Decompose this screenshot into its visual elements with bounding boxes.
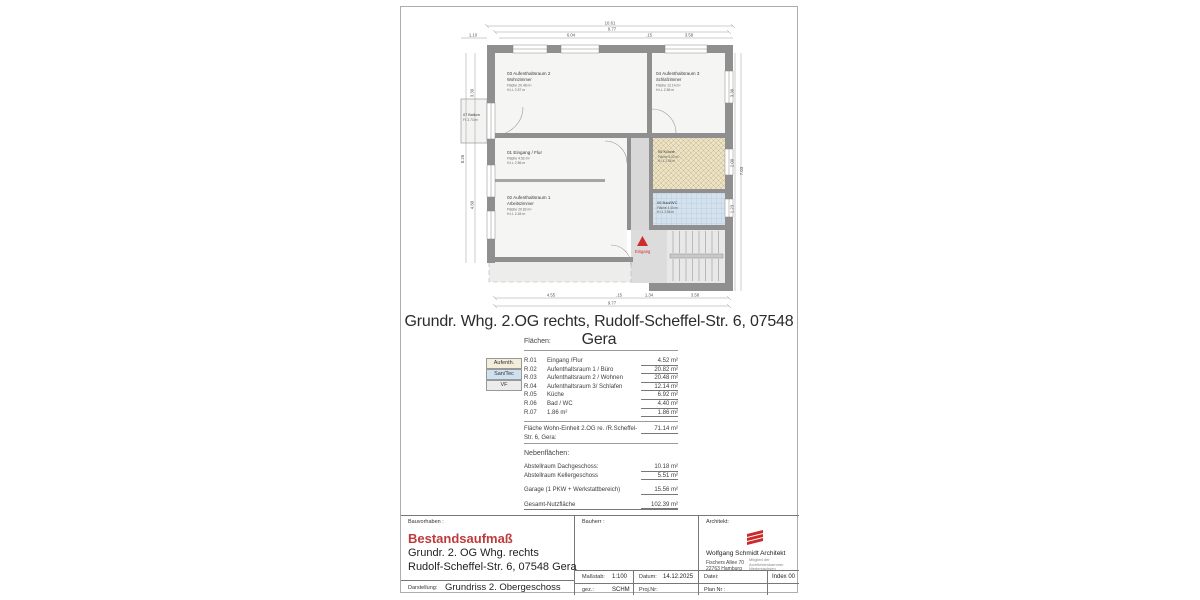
row-name: Bad / WC	[547, 400, 641, 409]
index-value: Index 00	[772, 574, 795, 580]
room-height: H.i.L 2.56 m	[658, 159, 675, 163]
room-label: 05 Küche	[658, 149, 676, 154]
row-code: R.06	[524, 400, 547, 409]
item-label: Garage (1 PKW + Werkstattbereich)	[524, 486, 641, 495]
room-label: 07 Balkon	[463, 113, 480, 117]
dim-right-upper: 3.39	[730, 88, 735, 97]
room-sublabel: Wohnzimmer	[507, 77, 532, 82]
table-row: R.07 1.86 m² 1.86 m²	[524, 409, 678, 418]
room-fills	[461, 53, 725, 283]
table-row: R.03 Aufenthaltsraum 2 / Wohnen 20.48 m²	[524, 374, 678, 383]
project-line1: Grundr. 2. OG Whg. rechts	[408, 547, 539, 559]
row-value: 12.14 m²	[641, 383, 678, 392]
massstab-value: 1:100	[612, 574, 627, 580]
secondary-areas: Abstellraum Dachgeschoss: 10.18 m² Abste…	[524, 463, 678, 510]
dim-top-gap: .15	[646, 33, 653, 38]
table-row: R.01 Eingang /Flur 4.52 m²	[524, 357, 678, 366]
legend-aufenthalt: Aufenth.	[486, 358, 522, 369]
garage-row: Garage (1 PKW + Werkstattbereich) 15.56 …	[524, 486, 678, 495]
list-item: Abstellraum Kellergeschoss 5.51 m²	[524, 472, 678, 481]
divider	[574, 583, 799, 584]
massstab-label: Maßstab:	[582, 574, 605, 580]
table-row: R.06 Bad / WC 4.40 m²	[524, 400, 678, 409]
room-height: H.i.L 2.45 m	[507, 212, 525, 216]
room-label: 03 Aufenthaltsraum 2	[507, 71, 551, 76]
projnr-label: Proj.Nr:	[639, 587, 658, 593]
row-name: Eingang /Flur	[547, 357, 641, 366]
item-label: Abstellraum Kellergeschoss	[524, 472, 641, 481]
row-code: R.01	[524, 357, 547, 366]
row-name: 1.86 m²	[547, 409, 641, 418]
dwelling-total-row: Fläche Wohn-Einheit 2.OG re. /R.Scheffel…	[524, 425, 678, 434]
row-name: Küche	[547, 391, 641, 400]
membership-line: Niedersachsen	[749, 567, 783, 572]
dim-balcony-width: 1.10	[469, 33, 478, 38]
room-schlafzimmer	[652, 53, 725, 133]
secondary-heading: Nebenflächen:	[524, 450, 569, 457]
datei-label: Datei:	[704, 574, 718, 580]
architect-membership: Mitglied der Architektenkammer Niedersac…	[749, 558, 783, 572]
dim-top-total: 10.61	[605, 21, 616, 26]
total-label: Gesamt-Nutzfläche	[524, 501, 641, 510]
gez-value: SCHM	[612, 587, 630, 593]
total-value: 102.39 m²	[641, 501, 678, 510]
divider	[524, 350, 678, 351]
room-label: 02 Aufenthaltsraum 1	[507, 195, 551, 200]
dim-top-inner: 9.77	[608, 27, 617, 32]
row-code: R.07	[524, 409, 547, 418]
areas-heading: Flächen:	[524, 338, 551, 345]
room-label: 06 Bad/WC	[657, 200, 678, 205]
datum-value: 14.12.2025	[663, 574, 693, 580]
row-value: 20.48 m²	[641, 374, 678, 383]
architect-addr2: 22763 Hamburg	[706, 566, 742, 572]
drawing-sheet: 10.61 9.77 6.04 .15 3.58 1.10 8.26 3.39 …	[400, 6, 798, 593]
room-label: 01 Eingang / Flur	[507, 150, 542, 155]
dim-bottom-gap: .15	[616, 293, 623, 298]
legend-santec: San/Tec	[486, 369, 522, 380]
row-code: R.04	[524, 383, 547, 392]
room-area: Fl. 3.73 m²	[463, 118, 478, 122]
dim-top-right: 3.58	[685, 33, 694, 38]
row-code: R.05	[524, 391, 547, 400]
dim-right-lower: 1.23	[730, 204, 735, 213]
row-name: Aufenthaltsraum 2 / Wohnen	[547, 374, 641, 383]
project-line2: Rudolf-Scheffel-Str. 6, 07548 Gera	[408, 561, 577, 573]
room-area: Fläche 12.14 m²	[656, 84, 681, 88]
divider	[633, 570, 634, 595]
room-height: H.i.L 2.56 m	[507, 161, 525, 165]
areas-table: Aufenth. San/Tec VF R.01 Eingang /Flur 4…	[524, 357, 678, 417]
total-value: 71.14 m²	[641, 425, 678, 434]
divider	[767, 570, 768, 595]
item-label: Abstellraum Dachgeschoss:	[524, 463, 641, 472]
list-item: Abstellraum Dachgeschoss: 10.18 m²	[524, 463, 678, 472]
bauherr-label: Bauherr :	[582, 519, 605, 525]
dim-bottom-inner: 9.77	[608, 301, 617, 306]
dim-bottom-hall: 1.34	[645, 293, 654, 298]
entrance-label: Eingang	[635, 249, 651, 254]
item-value: 15.56 m²	[641, 486, 678, 495]
room-height: H.i.L 2.57 m	[507, 88, 525, 92]
corridor	[631, 138, 649, 230]
divider	[401, 580, 574, 581]
dim-left-lower: 4.60	[470, 200, 475, 209]
page-title: Grundr. Whg. 2.OG rechts, Rudolf-Scheffe…	[401, 313, 797, 349]
room-wohnzimmer	[495, 53, 647, 133]
plannr-label: Plan Nr :	[704, 587, 725, 593]
row-value: 6.92 m²	[641, 391, 678, 400]
room-kueche	[653, 138, 725, 189]
item-value: 5.51 m²	[641, 472, 678, 481]
row-value: 1.86 m²	[641, 409, 678, 418]
project-name: Bestandsaufmaß	[408, 531, 513, 546]
row-name: Aufenthaltsraum 3/ Schlafen	[547, 383, 641, 392]
room-area: Fläche 20.82 m²	[507, 208, 532, 212]
adjacent-roof-area	[489, 261, 631, 282]
row-name: Aufenthaltsraum 1 / Büro	[547, 366, 641, 375]
room-sublabel: Schlafzimmer	[656, 77, 682, 82]
row-code: R.02	[524, 366, 547, 375]
row-value: 20.82 m²	[641, 366, 678, 375]
room-sublabel: Arbeitszimmer	[507, 201, 534, 206]
room-area: Fläche 4.52 m²	[507, 157, 530, 161]
legend-vf: VF	[486, 380, 522, 391]
table-row: R.04 Aufenthaltsraum 3/ Schlafen 12.14 m…	[524, 383, 678, 392]
dim-top-left: 6.04	[567, 33, 576, 38]
table-row: R.02 Aufenthaltsraum 1 / Büro 20.82 m²	[524, 366, 678, 375]
row-value: 4.52 m²	[641, 357, 678, 366]
room-label: 04 Aufenthaltsraum 3	[656, 71, 700, 76]
table-row: R.05 Küche 6.92 m²	[524, 391, 678, 400]
floor-plan: 10.61 9.77 6.04 .15 3.58 1.10 8.26 3.39 …	[451, 13, 751, 313]
divider	[524, 421, 678, 422]
room-height: H.i.L 2.56 m	[657, 210, 674, 214]
bauvorhaben-label: Bauvorhaben :	[408, 519, 444, 525]
dim-left-upper: 3.39	[470, 88, 475, 97]
dim-right-total: 7.03	[739, 166, 744, 175]
grand-total-row: Gesamt-Nutzfläche 102.39 m²	[524, 501, 678, 511]
row-code: R.03	[524, 374, 547, 383]
total-label: Fläche Wohn-Einheit 2.OG re. /R.Scheffel…	[524, 425, 641, 434]
item-value: 10.18 m²	[641, 463, 678, 472]
dim-left-total: 8.26	[460, 154, 465, 163]
darstellung-value: Grundriss 2. Obergeschoss	[445, 582, 561, 593]
dim-right-mid: 2.00	[730, 158, 735, 167]
dim-bottom-stair: 3.58	[691, 293, 700, 298]
architekt-label: Architekt:	[706, 519, 729, 525]
architect-logo-icon	[743, 529, 767, 545]
room-area: Fläche 20.48 m²	[507, 84, 532, 88]
gez-label: gez.:	[582, 587, 594, 593]
architect-name: Wolfgang Schmidt Architekt	[706, 550, 785, 557]
divider	[524, 443, 678, 444]
row-value: 4.40 m²	[641, 400, 678, 409]
vestibule	[631, 230, 667, 283]
datum-label: Datum:	[639, 574, 657, 580]
room-height: H.i.L 2.56 m	[656, 88, 674, 92]
title-block: Bauvorhaben : Bestandsaufmaß Grundr. 2. …	[401, 515, 799, 594]
darstellung-label: Darstellung:	[408, 585, 437, 591]
dim-bottom-room: 4.55	[547, 293, 556, 298]
